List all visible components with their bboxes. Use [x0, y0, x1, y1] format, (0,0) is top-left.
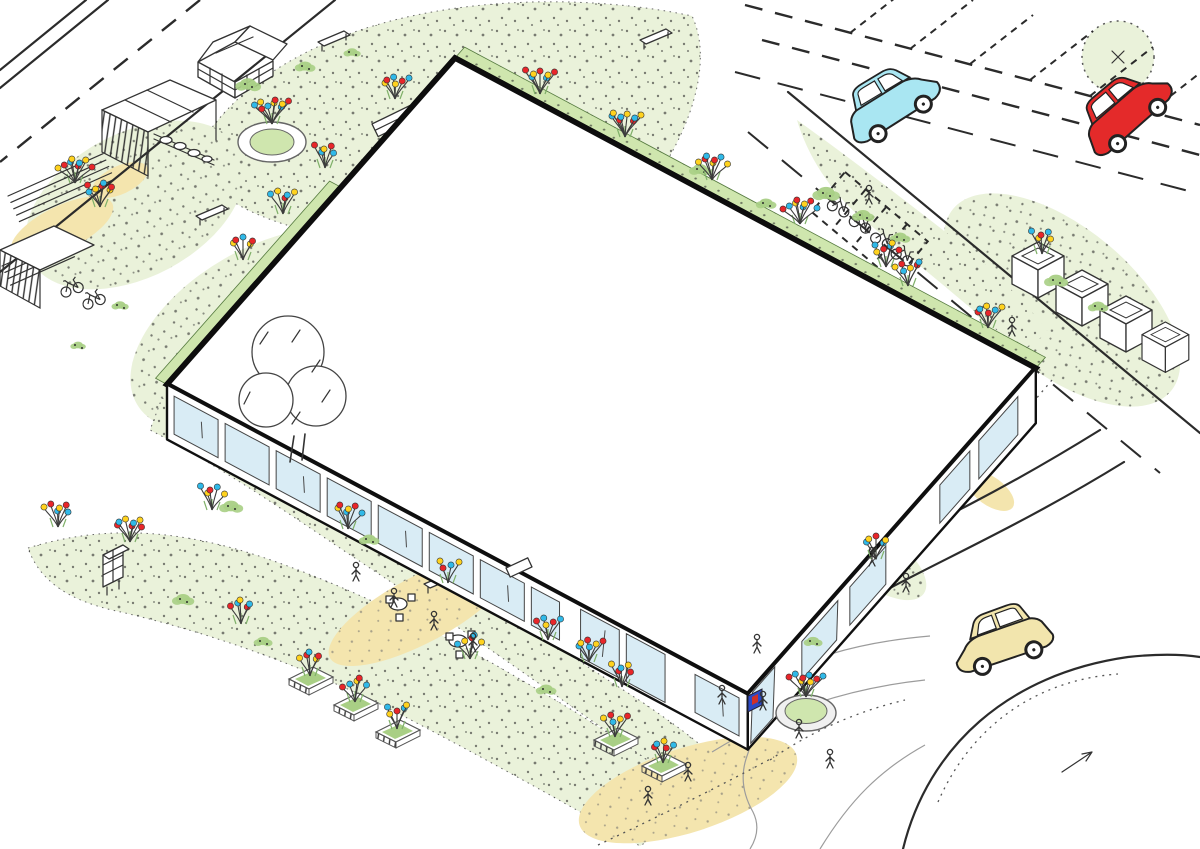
- shrub: [219, 501, 243, 513]
- shrub: [112, 301, 129, 310]
- car-dropoff-yellow: [944, 594, 1058, 684]
- entrance-planter: [776, 695, 836, 731]
- car-driving-cyan: [832, 50, 948, 152]
- shrub: [756, 198, 777, 208]
- circular-planter: [238, 122, 306, 162]
- person: [826, 749, 834, 768]
- flower-cluster: [41, 501, 71, 527]
- axonometric-care-centre-drawing: [0, 0, 1200, 849]
- site-plan-illustration: [0, 0, 1200, 849]
- loop-arrow-out: [1062, 752, 1092, 772]
- shrub: [70, 342, 85, 350]
- person: [352, 562, 360, 581]
